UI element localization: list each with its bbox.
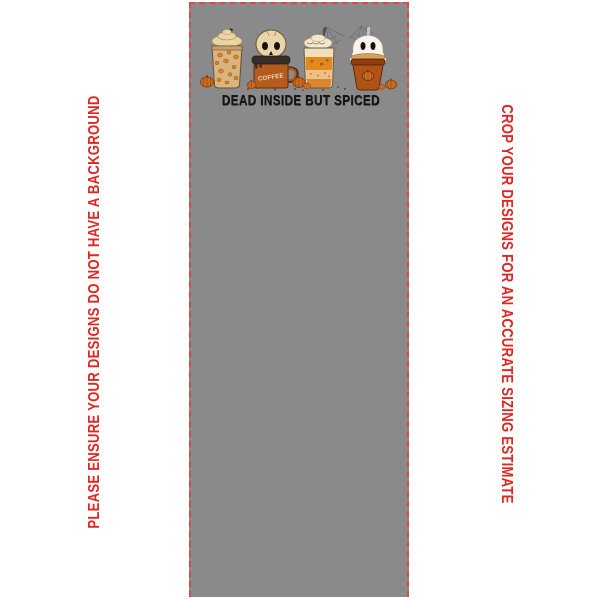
gang-sheet-canvas[interactable]: COFFEE	[189, 2, 409, 597]
design-title-text: DEAD INSIDE BUT SPICED	[222, 93, 376, 109]
skull-eye	[262, 42, 268, 50]
skull-mug-icon: COFFEE	[247, 30, 297, 89]
frappe-cup-icon	[201, 28, 243, 88]
placed-design-artwork[interactable]: COFFEE	[200, 26, 398, 109]
skull-scarf	[252, 56, 290, 64]
pumpkin-icon	[379, 79, 397, 90]
ghost-cup-icon	[350, 26, 397, 90]
background-warning-note: PLEASE ENSURE YOUR DESIGNS DO NOT HAVE A…	[86, 95, 104, 528]
crop-sizing-note: CROP YOUR DESIGNS FOR AN ACCURATE SIZING…	[497, 104, 515, 503]
pumpkin-icon	[201, 76, 214, 88]
ghost-eye	[361, 42, 366, 50]
ghost-eye	[371, 42, 376, 50]
halloween-coffee-cups-illustration: COFFEE	[200, 26, 398, 92]
skull-eye	[274, 42, 280, 50]
